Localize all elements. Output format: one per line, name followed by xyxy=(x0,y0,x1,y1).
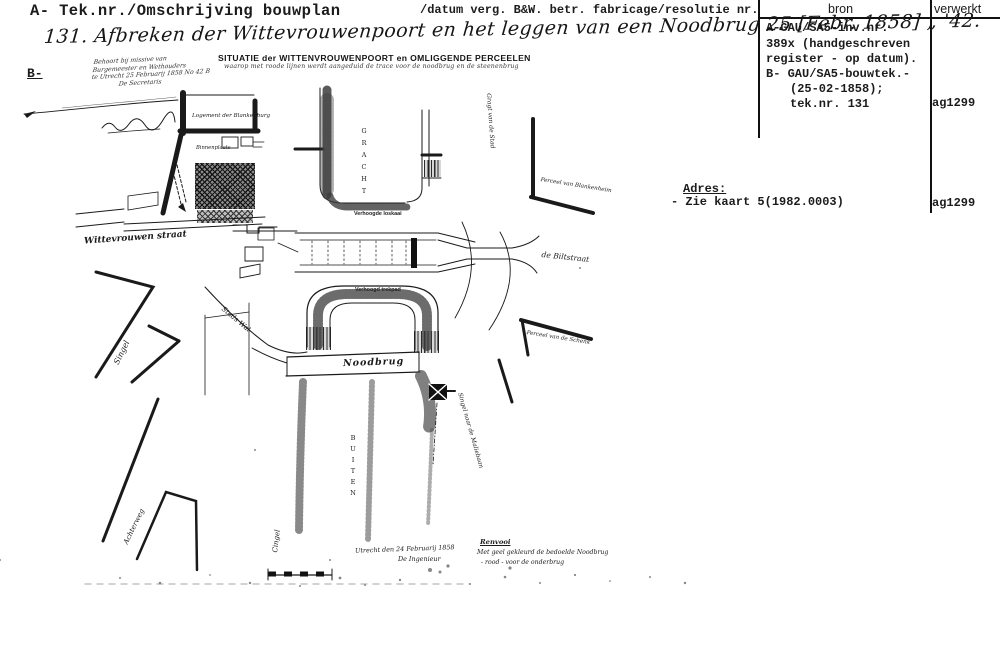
map-label-logement: Logement der Blankenburg xyxy=(192,113,270,119)
map-label-verhoogde-loskaai: Verhoogde loskaai xyxy=(354,211,402,217)
map-label-binnenplaats: Binnenplaats xyxy=(196,145,230,151)
map-legend-renvooi: Renvooi xyxy=(480,538,511,546)
map-label-buiten: BUITEN xyxy=(349,434,357,500)
mill-symbol xyxy=(429,360,512,465)
streets-left xyxy=(76,192,265,570)
streets-right xyxy=(521,119,593,355)
arch xyxy=(307,286,438,350)
map-legend-line2: - rood - voor de onderbrug xyxy=(481,559,564,566)
signature-squiggle xyxy=(102,112,175,133)
map-legend-line1: Met geel gekleurd de bedoelde Noodbrug xyxy=(477,549,608,556)
canal-outline xyxy=(295,88,441,203)
gate-building xyxy=(163,93,264,213)
annotation-arrow xyxy=(24,97,178,118)
archive-card-page: A- Tek.nr./Omschrijving bouwplan /datum … xyxy=(0,0,1000,648)
towpath-stipple xyxy=(299,376,432,540)
scale-bar xyxy=(268,569,332,580)
channel xyxy=(233,222,539,330)
map-label-verhoogd-trekpad: Verhoogd trekpad xyxy=(355,287,401,293)
map-label-noodbrug: Noodbrug xyxy=(343,356,405,369)
map-label-gracht: GRACHT xyxy=(360,127,368,199)
map-label-ingenieur: De Ingenieur xyxy=(398,555,441,563)
